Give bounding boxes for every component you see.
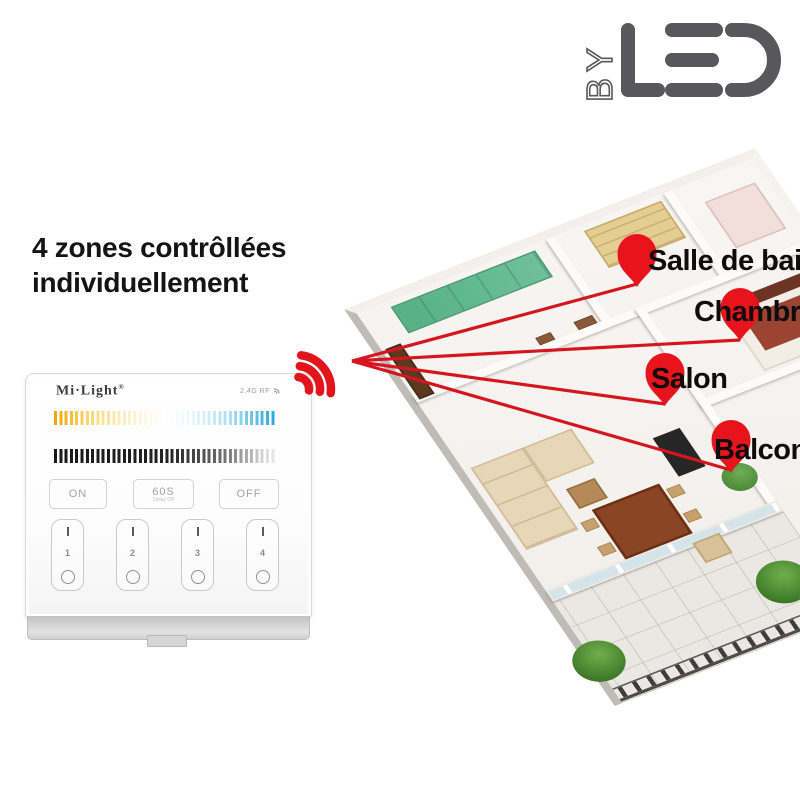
slider-ring (126, 570, 140, 584)
apartment-floorplan-3d (344, 148, 800, 706)
slider-tick (132, 527, 134, 536)
zone-number: 1 (65, 548, 70, 558)
dining-chair (597, 542, 617, 557)
slider-ring (191, 570, 205, 584)
byled-logo: BYLED BY (578, 8, 798, 108)
zone-sliders: 1 2 3 4 (26, 519, 311, 593)
room-label-chambre: Chambre (694, 296, 800, 329)
wall-panel-remote: Mi·Light® 2.4G RF ON 60S Dela (25, 373, 310, 643)
remote-face: Mi·Light® 2.4G RF ON 60S Dela (25, 373, 312, 618)
registered-mark: ® (118, 383, 124, 391)
room-label-salon: Salon (651, 363, 727, 396)
headline: 4 zones contrôllées individuellement (32, 230, 286, 300)
dining-chair (580, 518, 600, 533)
remote-base-tab (147, 635, 187, 647)
small-bed (705, 182, 787, 248)
timer-60s-button[interactable]: 60S Delay Off (133, 479, 194, 509)
slider-ring (256, 570, 270, 584)
slider-tick (262, 527, 264, 536)
slider-tick (67, 527, 69, 536)
logo-letter-d (732, 30, 774, 90)
remote-header: Mi·Light® 2.4G RF (56, 383, 281, 400)
timer-sub-label: Delay Off (153, 498, 174, 503)
slider-tick (197, 527, 199, 536)
color-temperature-bar[interactable] (54, 411, 276, 425)
slider-ring (61, 570, 75, 584)
dining-chair (683, 508, 703, 523)
rf-wifi-icon (272, 387, 281, 395)
tv-stand (653, 428, 706, 477)
headline-line2: individuellement (32, 265, 286, 300)
off-button[interactable]: OFF (219, 479, 279, 509)
room-label-balcon: Balcon (714, 434, 800, 467)
kitchen-cabinets (391, 250, 553, 333)
zone-slider-2[interactable]: 2 (116, 519, 149, 591)
rf-label: 2.4G RF (240, 387, 281, 395)
zone-slider-1[interactable]: 1 (51, 519, 84, 591)
room-label-salle-de-bain: Salle de bain (648, 245, 800, 278)
logo-letter-l (628, 30, 658, 90)
logo-by-text: BY (579, 42, 620, 102)
logo-led-glyphs (628, 30, 774, 90)
entry-door (385, 343, 434, 399)
zone-number: 3 (195, 548, 200, 558)
on-button[interactable]: ON (49, 479, 107, 509)
zone-slider-4[interactable]: 4 (246, 519, 279, 591)
headline-line1: 4 zones contrôllées (32, 230, 286, 265)
zone-slider-3[interactable]: 3 (181, 519, 214, 591)
product-image: BYLED BY 4 zones contrôllées individuell… (0, 0, 800, 800)
brightness-bar[interactable] (54, 449, 276, 463)
zone-number: 2 (130, 548, 135, 558)
coffee-table (566, 478, 608, 509)
brand-label: Mi·Light® (56, 383, 125, 400)
dining-chair (666, 484, 686, 499)
zone-number: 4 (260, 548, 265, 558)
button-row: ON 60S Delay Off OFF (26, 479, 311, 509)
